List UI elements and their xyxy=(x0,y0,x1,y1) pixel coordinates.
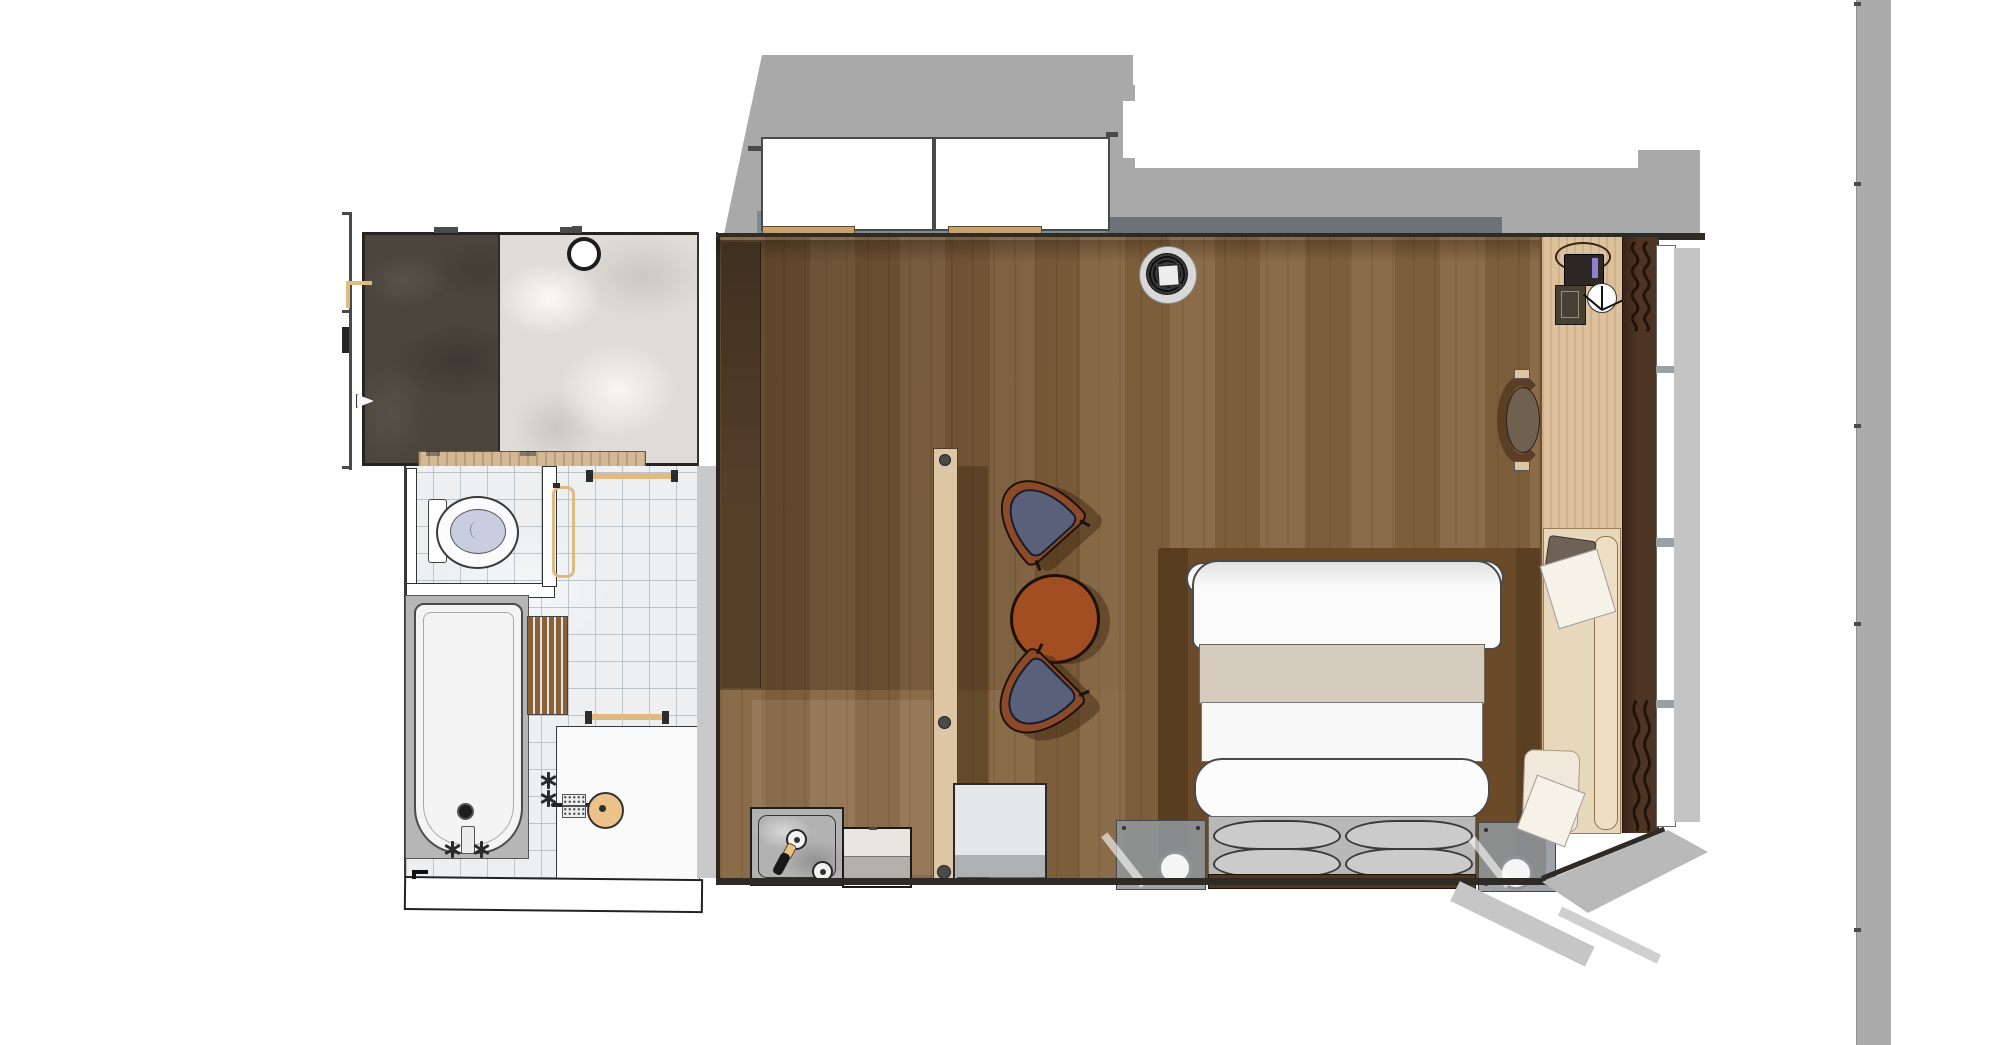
shower-glass-divider xyxy=(498,235,500,463)
bed-runner xyxy=(1199,644,1485,704)
towel-bar-lower-cap-right xyxy=(662,711,669,724)
ceiling-speaker-center xyxy=(1156,263,1181,288)
telephone xyxy=(1564,254,1604,286)
basin-handle-1 xyxy=(540,772,557,789)
white-side-table xyxy=(953,783,1047,881)
closet-left xyxy=(761,137,934,231)
window-mullion-2 xyxy=(1656,538,1674,547)
towel-ring-vertical xyxy=(552,486,575,578)
soap-tray-2 xyxy=(562,806,586,818)
door-tick-bottom xyxy=(342,466,352,469)
rolled-blanket xyxy=(1194,758,1490,820)
drain-mark xyxy=(572,226,582,232)
window-mullion-1 xyxy=(1656,366,1674,373)
pillow-area xyxy=(1208,816,1476,878)
pillar-tick-5 xyxy=(1854,928,1861,932)
vanity-notch-2 xyxy=(520,451,536,456)
bath-mat-teak xyxy=(527,616,568,715)
pillar-tick-4 xyxy=(1854,622,1861,626)
roof-shadow-notch xyxy=(1123,101,1140,158)
shower-floor-dark-marble xyxy=(365,235,500,463)
bathroom-floor-light-marble xyxy=(500,235,697,463)
round-side-table xyxy=(1010,574,1100,664)
towel-bar-lower xyxy=(589,714,665,720)
south-wall xyxy=(716,878,1546,885)
partition-hinge-mid xyxy=(938,716,951,729)
window-outer-shadow xyxy=(1674,248,1700,822)
desk-clock xyxy=(1587,283,1617,313)
bathroom-south-wall xyxy=(404,876,703,913)
window-band xyxy=(1656,245,1676,827)
basin-drain-dot xyxy=(599,805,606,812)
vanity-notch-1 xyxy=(426,451,440,456)
roof-shadow-step xyxy=(1638,150,1700,170)
closet-right-hinge-mark xyxy=(1106,132,1118,137)
tub-drain xyxy=(457,803,474,820)
towel-bar-upper-cap-left xyxy=(586,470,593,482)
bed-sheet xyxy=(1201,702,1483,762)
partition-hinge-top xyxy=(939,454,951,466)
door-handle xyxy=(342,327,349,353)
duvet-foot xyxy=(1192,560,1502,650)
pillar-tick-3 xyxy=(1854,424,1861,428)
curtain-squiggle-top xyxy=(1625,240,1655,332)
shower-wall-notch-1 xyxy=(434,227,458,233)
desk-chair-seat xyxy=(1506,387,1540,453)
pillow xyxy=(1345,820,1473,850)
partition-hinge-bottom xyxy=(937,865,951,879)
window-track-strip xyxy=(1106,217,1502,233)
pad-inner-line xyxy=(1561,291,1579,318)
side-table-band xyxy=(955,855,1045,877)
tub-handle-right xyxy=(473,841,490,858)
dividing-wall-upper xyxy=(697,232,718,466)
toilet-seat-curve xyxy=(470,521,485,539)
desk-chair-tab-top xyxy=(1514,369,1530,379)
pillar-tick-2 xyxy=(1854,182,1861,186)
side-table-top xyxy=(955,785,1045,855)
phone-screen xyxy=(1592,258,1598,278)
right-pillar-strip xyxy=(1856,0,1891,1045)
closet-left-hinge-mark xyxy=(748,146,761,151)
floor-drain xyxy=(567,237,601,271)
corner-mark-v xyxy=(412,870,416,879)
desk-chair xyxy=(1497,376,1545,464)
towel-bar-upper-cap-right xyxy=(671,470,678,482)
door-tick-top xyxy=(342,212,352,215)
shower-room xyxy=(362,232,700,466)
closet-right xyxy=(934,137,1110,231)
towel-ring-mount xyxy=(553,483,560,488)
fridge-handle-notch xyxy=(869,827,877,830)
bathroom-door-line xyxy=(349,212,352,470)
pillar-tick-1 xyxy=(1854,2,1861,6)
floor-shade-top xyxy=(716,240,1542,262)
wardrobe-column xyxy=(721,242,761,688)
floor-plan-canvas xyxy=(0,0,2000,1045)
soap-tray-1 xyxy=(562,794,586,806)
tub-handle-left xyxy=(444,841,461,858)
curtain-squiggle-bottom xyxy=(1627,698,1655,832)
fridge-top xyxy=(844,829,910,857)
door-hinge-bracket xyxy=(346,281,372,308)
desk-chair-tab-bottom xyxy=(1514,461,1530,471)
wash-basin xyxy=(587,792,624,829)
pillow xyxy=(1213,820,1341,850)
toilet-cubicle-wall-left xyxy=(406,468,417,597)
window-mullion-3 xyxy=(1656,700,1674,708)
towel-bar-upper xyxy=(590,473,674,479)
towel-bar-lower-cap-left xyxy=(585,711,592,724)
door-tick-mid xyxy=(342,310,352,313)
